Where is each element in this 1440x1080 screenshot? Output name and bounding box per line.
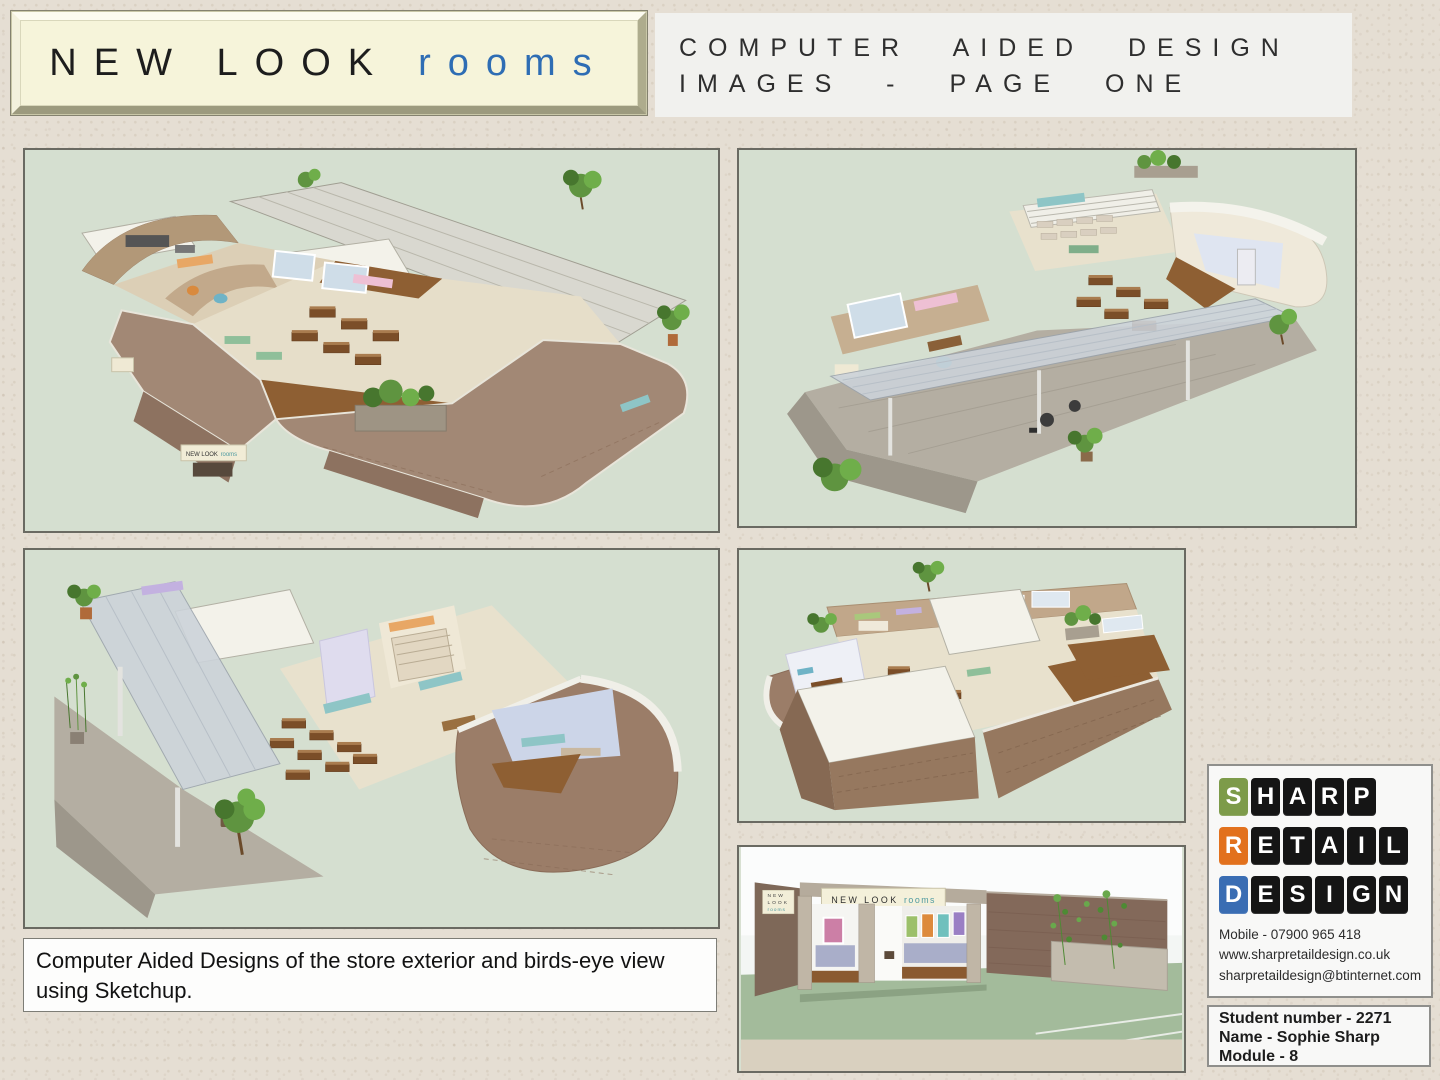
brand-letter-tile: A [1315, 827, 1344, 865]
brand-letter-tile: A [1283, 778, 1312, 816]
contact-website: www.sharpretaildesign.co.uk [1219, 945, 1423, 965]
render-exterior-image: NEW LOOK rooms NEW LOOK rooms [739, 847, 1184, 1071]
page-title: COMPUTER AIDED DESIGN IMAGES - PAGE ONE [655, 13, 1352, 117]
sharp-retail-design-box: SHARP RETAIL DESIGN Mobile - 07900 965 4… [1207, 764, 1433, 998]
render-birdseye-rear-right [737, 548, 1186, 823]
brand-logo-box: NEW LOOKrooms [10, 10, 648, 116]
brand-word-1: RETAIL [1219, 827, 1423, 865]
brand-letter-tile: R [1315, 778, 1344, 816]
student-module: Module - 8 [1219, 1048, 1419, 1067]
render-birdseye-rear-image [739, 150, 1355, 526]
caption-text: Computer Aided Designs of the store exte… [36, 948, 665, 1003]
brand-letter-tile: D [1219, 876, 1248, 914]
caption: Computer Aided Designs of the store exte… [23, 938, 717, 1012]
render-exterior: NEW LOOK rooms NEW LOOK rooms [737, 845, 1186, 1073]
render-birdseye-rear-right-image [739, 550, 1184, 821]
brand-letter-tile: E [1251, 876, 1280, 914]
page-title-line1: COMPUTER AIDED DESIGN [679, 30, 1352, 66]
side-sign-line2: LOOK [767, 900, 789, 906]
side-sign-line3: rooms [767, 907, 786, 913]
student-info-box: Student number - 2271 Name - Sophie Shar… [1207, 1005, 1431, 1067]
brand-letter-tile: S [1219, 778, 1248, 816]
fascia-sign-primary: NEW LOOK [831, 895, 898, 905]
brand-letter-tile: I [1347, 827, 1376, 865]
render-birdseye-front-left-image: NEW LOOK rooms [25, 150, 718, 531]
brand-logo-primary: NEW LOOK [49, 42, 390, 84]
contact-mobile: Mobile - 07900 965 418 [1219, 925, 1423, 945]
brand-logo-secondary: rooms [418, 42, 609, 84]
brand-letter-tile: I [1315, 876, 1344, 914]
page-title-line2: IMAGES - PAGE ONE [679, 66, 1352, 102]
render-birdseye-rear [737, 148, 1357, 528]
brand-letter-tile: L [1379, 827, 1408, 865]
brand-letter-tile: G [1347, 876, 1376, 914]
brand-logo-bevel: NEW LOOKrooms [12, 12, 646, 114]
render-birdseye-side-image [25, 550, 718, 927]
fascia-sign-secondary: rooms [904, 895, 936, 905]
contact-info: Mobile - 07900 965 418 www.sharpretailde… [1219, 925, 1423, 986]
student-name: Name - Sophie Sharp [1219, 1029, 1419, 1048]
brand-word-0: SHARP [1219, 778, 1423, 816]
brand-letter-tile: N [1379, 876, 1408, 914]
brand-logo-text: NEW LOOKrooms [49, 42, 608, 85]
brand-letter-tile: P [1347, 778, 1376, 816]
brand-letter-tile: H [1251, 778, 1280, 816]
brand-letter-tile: E [1251, 827, 1280, 865]
render-birdseye-side [23, 548, 720, 929]
render-birdseye-front-left: NEW LOOK rooms [23, 148, 720, 533]
brand-letter-tile: T [1283, 827, 1312, 865]
contact-email: sharpretaildesign@btinternet.com [1219, 966, 1423, 986]
brand-letter-tile: S [1283, 876, 1312, 914]
storefront-sign-primary: NEW LOOK [186, 452, 218, 458]
side-sign-line1: NEW [767, 893, 784, 899]
storefront-sign-secondary: rooms [221, 452, 237, 458]
brand-letter-tile: R [1219, 827, 1248, 865]
student-number: Student number - 2271 [1219, 1010, 1419, 1029]
brand-word-2: DESIGN [1219, 876, 1423, 914]
